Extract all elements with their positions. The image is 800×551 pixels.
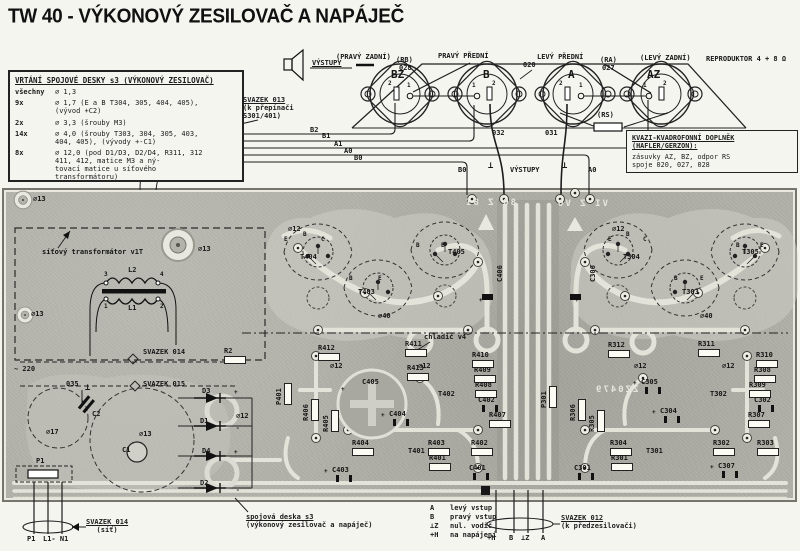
annotation-label: R404 xyxy=(352,440,374,456)
annotation-label: A0 xyxy=(344,148,352,155)
legend-value: na napájení xyxy=(450,531,496,540)
annotation-label: B xyxy=(674,275,678,282)
drill-table-rows: všechny ∅ 1,3 9x ∅ 1,7 (E a B T304, 305,… xyxy=(15,88,237,181)
annotation-label: D4 xyxy=(202,448,210,455)
annotation-label: 1 xyxy=(104,303,108,310)
annotation-label: ∅12 xyxy=(288,226,301,233)
drill-table-row: 9x ∅ 1,7 (E a B T304, 305, 404, 405), (v… xyxy=(15,99,237,115)
annotation-label: B xyxy=(349,275,353,282)
legend-key: +H xyxy=(430,531,450,540)
drill-table-row: všechny ∅ 1,3 xyxy=(15,88,237,96)
annotation-label: + xyxy=(341,386,345,393)
annotation-label: T405 xyxy=(448,249,465,256)
annotation-label: A0 xyxy=(588,167,596,174)
annotation-label: VI Z VO xyxy=(556,201,608,208)
drill-spec: ∅ 1,3 xyxy=(55,88,76,96)
annotation-label: 027 xyxy=(602,65,615,72)
annotation-label: A xyxy=(541,535,545,542)
annotation-label: B xyxy=(416,242,420,249)
annotation-label: + xyxy=(234,449,238,456)
annotation-label: 1 xyxy=(472,82,476,89)
svazek-013-note: SVAZEK 013 (k přepínači S301/401) xyxy=(243,96,294,120)
svazek-012-note: SVAZEK 012 (k předzesilovači) xyxy=(561,514,637,530)
annotation-label: 1 xyxy=(407,82,411,89)
annotation-label: + xyxy=(324,468,328,475)
legend-value: levý vstup xyxy=(450,504,492,513)
drill-spec: ∅ 1,7 (E a B T304, 305, 404, 405), (vývo… xyxy=(55,99,198,115)
annotation-label: T402 xyxy=(438,391,455,398)
annotation-label: P1 xyxy=(36,458,44,465)
annotation-label: R301 xyxy=(611,455,633,471)
annotation-label: 1 xyxy=(579,82,583,89)
kvazi-body1: zásuvky AZ, BZ, odpor RS xyxy=(632,153,792,161)
annotation-label: L1 xyxy=(128,305,136,312)
annotation-label: C2 xyxy=(92,411,100,418)
annotation-label: SVAZEK 014 xyxy=(143,349,185,356)
annotation-label: C xyxy=(321,236,325,243)
annotation-label: LEVÝ PŘEDNÍ xyxy=(537,54,583,61)
svazek-014-title: SVAZEK 014 xyxy=(86,518,128,526)
annotation-label: B0 xyxy=(354,155,362,162)
annotation-label: 2 xyxy=(388,80,392,87)
annotation-label: R401 xyxy=(429,455,451,471)
annotation-label: 4 xyxy=(160,271,164,278)
annotation-label: C402 xyxy=(478,397,498,412)
annotation-label: C305 xyxy=(641,379,661,394)
annotation-label: R305 xyxy=(589,410,605,432)
legend-row: ⊥Z nul. vodič xyxy=(430,522,496,531)
annotation-label: (LEVÝ ZADNÍ) xyxy=(640,55,691,62)
annotation-label: T303 xyxy=(682,289,699,296)
annotation-label: síťový transformátor v1T xyxy=(42,249,143,256)
annotation-label: E xyxy=(700,275,704,282)
annotation-label: ∅12 xyxy=(612,226,625,233)
annotation-label: REPRODUKTOR 4 + 8 Ω xyxy=(706,56,786,63)
annotation-label: ~ 220 xyxy=(14,366,35,373)
annotation-label: + xyxy=(479,297,483,304)
annotation-label: B xyxy=(483,71,490,78)
svazek-014-line2: (síť) xyxy=(86,526,128,534)
annotation-label: ∅13 xyxy=(31,311,44,318)
drill-qty: 2x xyxy=(15,119,55,127)
annotation-label: B xyxy=(303,231,307,238)
svazek-013-line3: S301/401) xyxy=(243,112,294,120)
annotation-label: ∅12 xyxy=(722,363,735,370)
annotation-label: R303 xyxy=(757,440,779,456)
legend-key: B xyxy=(430,513,450,522)
annotation-label: R307 xyxy=(748,412,770,428)
annotation-label: VÝSTUPY xyxy=(510,167,540,174)
annotation-label: C306 xyxy=(590,265,597,282)
annotation-label: + xyxy=(575,297,579,304)
annotation-label: R406 xyxy=(303,399,319,421)
annotation-label: C405 xyxy=(362,379,379,386)
annotation-label: T404 xyxy=(300,254,317,261)
annotation-label: - xyxy=(236,425,240,432)
annotation-label: B xyxy=(509,535,513,542)
legend-value: nul. vodič xyxy=(450,522,492,531)
annotation-label: B2 xyxy=(310,127,318,134)
svazek-014-note: SVAZEK 014 (síť) xyxy=(86,518,128,534)
annotation-label: ∅12 xyxy=(330,363,343,370)
annotation-label: C406 xyxy=(497,265,504,282)
transformer-core xyxy=(102,289,166,294)
arrowhead xyxy=(72,523,79,531)
drill-qty: 9x xyxy=(15,99,55,115)
svazek-013-line2: (k přepínači xyxy=(243,104,294,112)
board-caption: spojová deska s3 (výkonový zesilovač a n… xyxy=(246,513,372,529)
annotation-label: R405 xyxy=(323,410,339,432)
kvazi-kvadrofonni-box: KVAZI-KVADROFONNÍ DOPLNĚK (HAFLER/GERZON… xyxy=(626,130,798,173)
drill-qty: 14x xyxy=(15,130,55,146)
annotation-label: D1 xyxy=(200,418,208,425)
annotation-label: + xyxy=(381,412,385,419)
annotation-label: ∅40 xyxy=(700,313,713,320)
annotation-label: T403 xyxy=(358,289,375,296)
legend-row: A levý vstup xyxy=(430,504,496,513)
annotation-label: P1 xyxy=(27,536,35,543)
drill-qty: všechny xyxy=(15,88,55,96)
annotation-label: - xyxy=(236,487,240,494)
annotation-label: (RB) xyxy=(396,57,413,64)
terminal-legend: A levý vstup B pravý vstup ⊥Z nul. vodič… xyxy=(430,504,496,540)
annotation-label: C302 xyxy=(754,397,774,412)
annotation-label: 2 xyxy=(663,80,667,87)
drill-table-row: 14x ∅ 4,0 (šrouby T303, 304, 305, 403, 4… xyxy=(15,130,237,146)
svazek-013-title: SVAZEK 013 xyxy=(243,96,294,104)
annotation-label: B xyxy=(626,231,630,238)
annotation-label: ⊥ xyxy=(85,385,90,392)
legend-row: B pravý vstup xyxy=(430,513,496,522)
annotation-label: C301 xyxy=(574,465,594,480)
annotation-label: R413 xyxy=(407,365,429,381)
annotation-label: + xyxy=(652,409,656,416)
annotation-label: A xyxy=(568,71,575,78)
annotation-label: 2 xyxy=(160,303,164,310)
drill-spec: ∅ 3,3 (šrouby M3) xyxy=(55,119,127,127)
annotation-label: VÝSTUPY xyxy=(312,60,342,67)
annotation-label: ⊥Z xyxy=(521,535,529,542)
annotation-label: C404 xyxy=(389,411,409,426)
drill-spec: ∅ 12,0 (pod D1/D3, D2/D4, R311, 312 411,… xyxy=(55,149,203,181)
annotation-label: B1 xyxy=(322,133,330,140)
annotation-label: R306 xyxy=(570,399,586,421)
annotation-label: E xyxy=(378,275,382,282)
annotation-label: chladič v4 xyxy=(424,334,466,341)
annotation-label: C307 xyxy=(718,463,738,478)
annotation-label: E xyxy=(608,236,612,243)
annotation-label: + xyxy=(710,464,714,471)
annotation-label: SVAZEK 015 xyxy=(143,381,185,388)
kvazi-body2: spoje 020, 027, 028 xyxy=(632,161,792,169)
annotation-label: 2 xyxy=(492,80,496,87)
svazek-012-title: SVAZEK 012 xyxy=(561,514,637,522)
legend-value: pravý vstup xyxy=(450,513,496,522)
annotation-label: ∅40 xyxy=(378,313,391,320)
annotation-label: 8O Z 8I xyxy=(464,200,516,207)
annotation-label: 3 xyxy=(104,271,108,278)
legend-key: A xyxy=(430,504,450,513)
annotation-label: L2 xyxy=(128,267,136,274)
annotation-label: ∅13 xyxy=(198,246,211,253)
annotation-label: A1 xyxy=(334,141,342,148)
annotation-label: R402 xyxy=(471,440,493,456)
annotation-label: (PRAVÝ ZADNÍ) xyxy=(336,54,391,61)
annotation-label: C304 xyxy=(660,408,680,423)
drill-spec: ∅ 4,0 (šrouby T303, 304, 305, 403, 404, … xyxy=(55,130,198,146)
annotation-label: R412 xyxy=(318,345,340,361)
board-caption-line2: (výkonový zesilovač a napáječ) xyxy=(246,521,372,529)
drill-table: VRTÁNÍ SPOJOVÉ DESKY s3 (VÝKONOVÝ ZESILO… xyxy=(8,70,244,182)
kvazi-title: KVAZI-KVADROFONNÍ DOPLNĚK xyxy=(632,134,792,142)
annotation-label: T401 xyxy=(408,448,425,455)
svazek-012-line2: (k předzesilovači) xyxy=(561,522,637,530)
scanned-pcb-drawing: TW 40 - VÝKONOVÝ ZESILOVAČ A NAPÁJEČ VRT… xyxy=(0,0,800,551)
kvazi-title2: (HAFLER/GERZON): xyxy=(632,142,792,150)
annotation-label: ∅13 xyxy=(139,431,152,438)
annotation-label: B xyxy=(736,242,740,249)
board-caption-line1: spojová deska s3 xyxy=(246,513,372,521)
legend-key: ⊥Z xyxy=(430,522,450,531)
annotation-label: BZ xyxy=(391,71,404,78)
annotation-label: C1 xyxy=(122,447,130,454)
annotation-label: R311 xyxy=(698,341,720,357)
annotation-label: AZ xyxy=(647,71,660,78)
annotation-label: ZZ0479 xyxy=(594,387,639,394)
annotation-label: E xyxy=(760,242,764,249)
annotation-label: 031 xyxy=(545,130,558,137)
annotation-label: B0 xyxy=(458,167,466,174)
annotation-label: 035 xyxy=(66,381,79,388)
drill-table-title: VRTÁNÍ SPOJOVÉ DESKY s3 (VÝKONOVÝ ZESILO… xyxy=(15,76,237,85)
annotation-label: C403 xyxy=(332,467,352,482)
annotation-label: R411 xyxy=(405,341,427,357)
annotation-label: R2 xyxy=(224,348,246,364)
legend-row: +H na napájení xyxy=(430,531,496,540)
annotation-label: T301 xyxy=(646,448,663,455)
annotation-label: 032 xyxy=(492,130,505,137)
annotation-label: (RS) xyxy=(597,112,614,119)
annotation-label: PRAVÝ PŘEDNÍ xyxy=(438,53,489,60)
drill-table-row: 8x ∅ 12,0 (pod D1/D3, D2/D4, R311, 312 4… xyxy=(15,149,237,181)
annotation-label: 2 xyxy=(559,80,563,87)
annotation-label: 020 xyxy=(523,62,536,69)
fuse-p1 xyxy=(28,470,58,478)
annotation-label: R407 xyxy=(489,412,511,428)
annotation-label: 1 xyxy=(643,82,647,89)
annotation-label: C xyxy=(643,236,647,243)
annotation-label: T305 xyxy=(742,249,759,256)
annotation-label: C401 xyxy=(469,465,489,480)
annotation-label: T304 xyxy=(623,254,640,261)
annotation-label: E xyxy=(284,236,288,243)
annotation-label: P301 xyxy=(541,386,557,408)
annotation-label: R302 xyxy=(713,440,735,456)
annotation-label: ∅12 xyxy=(236,413,249,420)
resistor-rs xyxy=(594,123,622,131)
annotation-label: + xyxy=(234,389,238,396)
annotation-label: E xyxy=(441,242,445,249)
annotation-label: T302 xyxy=(710,391,727,398)
annotation-label: D3 xyxy=(202,388,210,395)
annotation-label: L1- N1 xyxy=(43,536,68,543)
annotation-label: ∅13 xyxy=(33,196,46,203)
drill-table-row: 2x ∅ 3,3 (šrouby M3) xyxy=(15,119,237,127)
annotation-label: R312 xyxy=(608,342,630,358)
annotation-label: P401 xyxy=(276,383,292,405)
annotation-label: ∅12 xyxy=(634,363,647,370)
annotation-label: ∅17 xyxy=(46,429,59,436)
annotation-label: ⊥ xyxy=(562,163,567,170)
annotation-label: ⊥ xyxy=(488,163,493,170)
annotation-label: (RA) xyxy=(600,57,617,64)
annotation-label: D2 xyxy=(200,480,208,487)
drill-qty: 8x xyxy=(15,149,55,181)
